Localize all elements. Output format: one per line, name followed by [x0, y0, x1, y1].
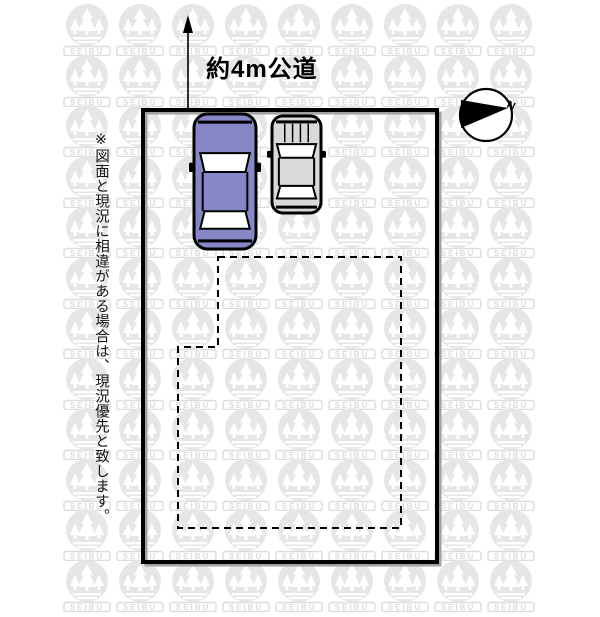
- site-plan-diagram: N: [0, 0, 600, 600]
- compass-icon: N: [460, 89, 517, 141]
- svg-text:SEIBU: SEIBU: [441, 603, 475, 612]
- svg-text:SEIBU: SEIBU: [388, 603, 422, 612]
- svg-text:SEIBU: SEIBU: [282, 603, 316, 612]
- disclaimer-note: ※図面と現況に相違がある場合は、現況優先と致します。: [92, 132, 109, 552]
- road-arrow-head-icon: [183, 15, 193, 33]
- road-width-label: 約4m公道: [206, 49, 318, 84]
- car-blue: [189, 114, 261, 249]
- svg-text:SEIBU: SEIBU: [123, 603, 157, 612]
- site-plan-canvas: SEIBUSEIBUSEIBUSEIBUSEIBUSEIBUSEIBUSEIBU…: [0, 0, 600, 600]
- car-gray: [267, 116, 326, 213]
- svg-text:SEIBU: SEIBU: [494, 603, 528, 612]
- building-outline-dashed: [178, 257, 401, 528]
- svg-text:SEIBU: SEIBU: [70, 603, 104, 612]
- svg-text:SEIBU: SEIBU: [229, 603, 263, 612]
- svg-text:SEIBU: SEIBU: [176, 603, 210, 612]
- svg-text:SEIBU: SEIBU: [335, 603, 369, 612]
